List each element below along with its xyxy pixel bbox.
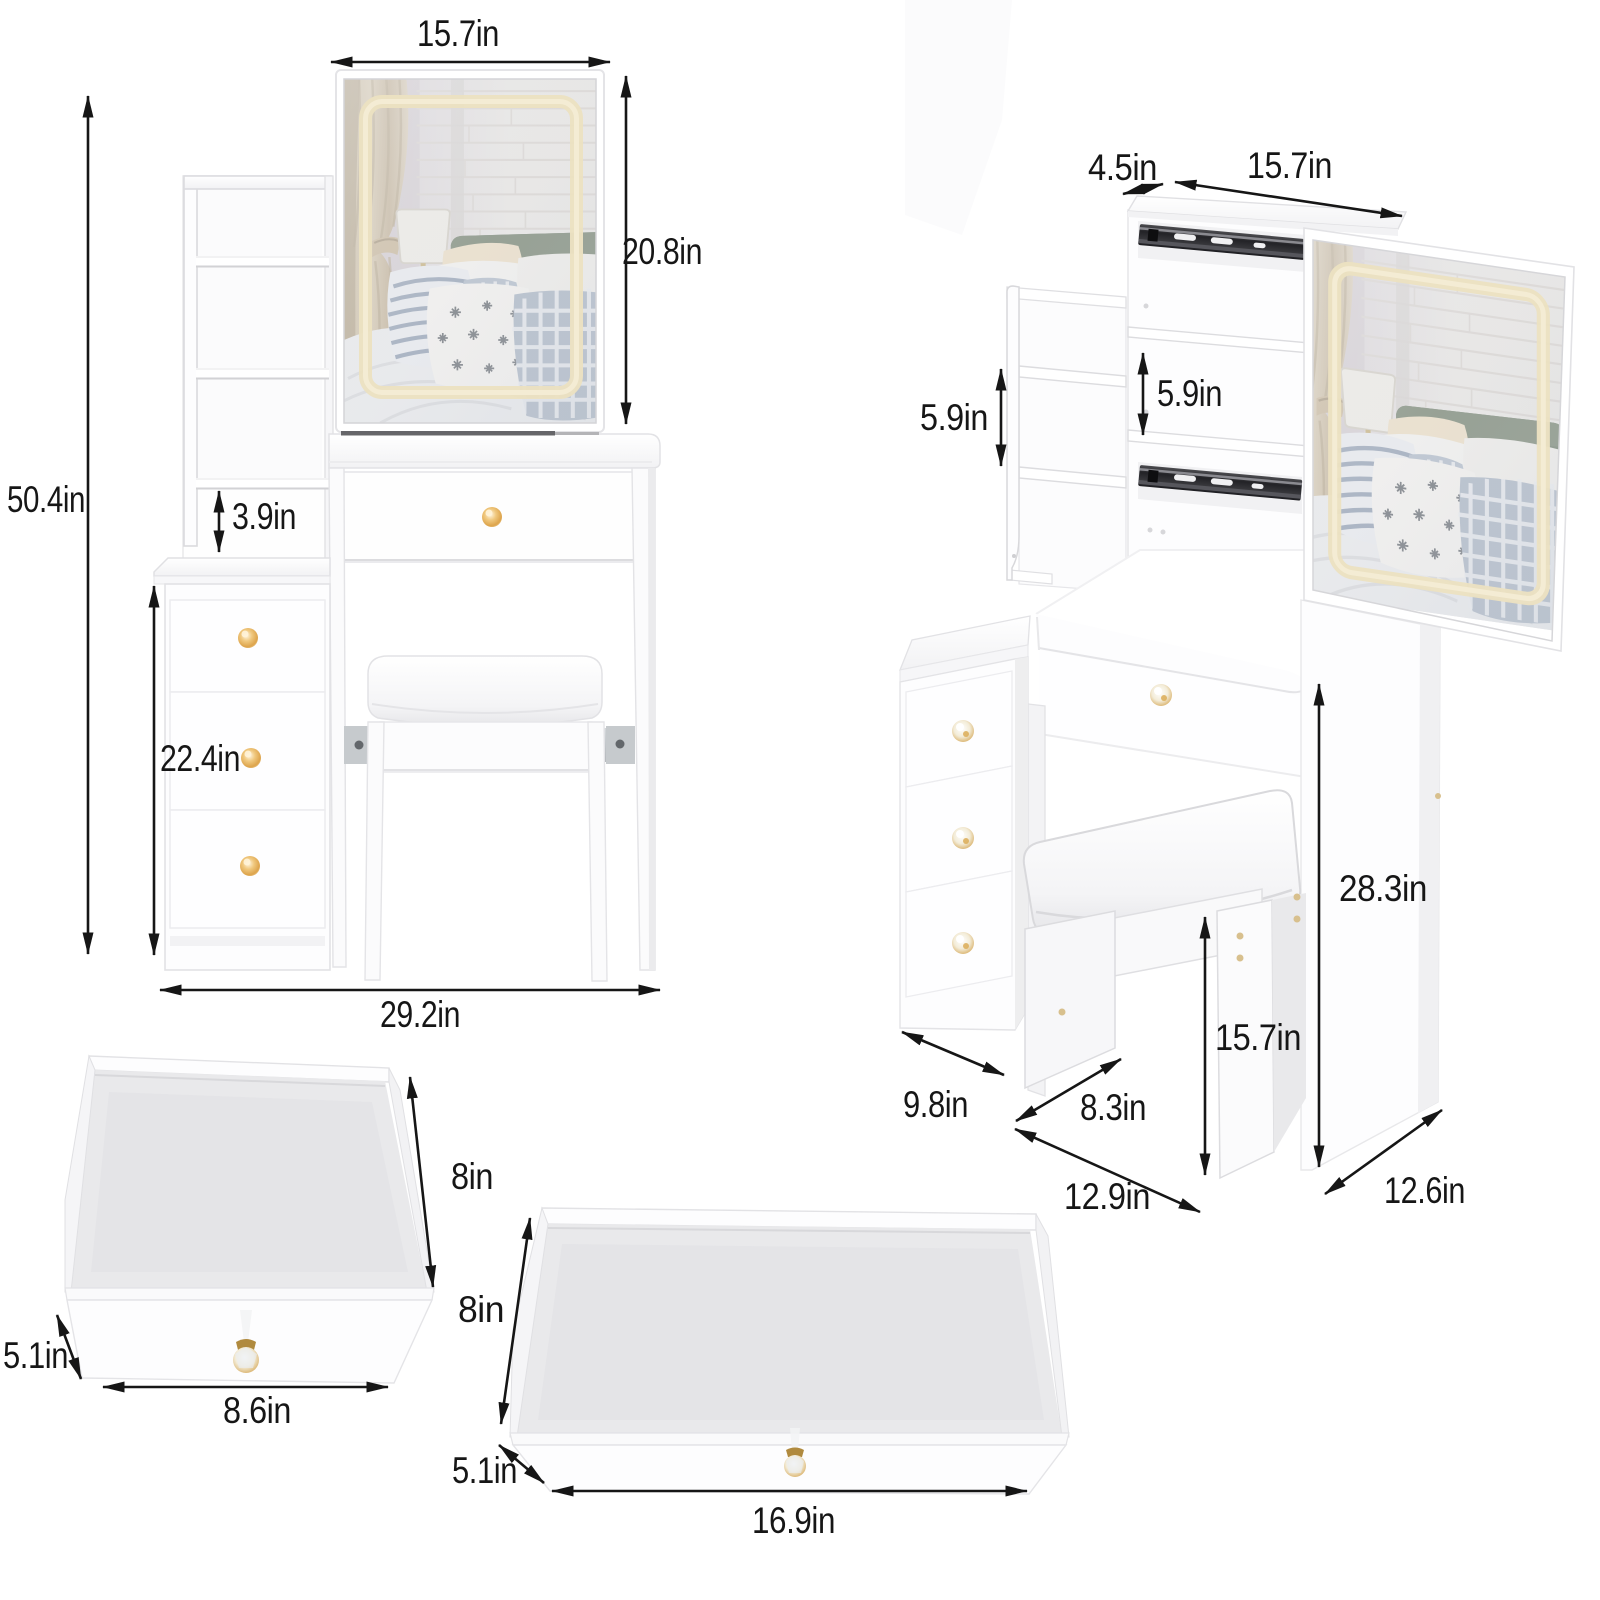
svg-text:29.2in: 29.2in bbox=[380, 994, 460, 1035]
svg-text:12.6in: 12.6in bbox=[1384, 1170, 1465, 1211]
svg-text:50.4in: 50.4in bbox=[7, 479, 85, 520]
svg-text:8in: 8in bbox=[458, 1289, 504, 1330]
svg-text:8in: 8in bbox=[451, 1156, 493, 1197]
svg-text:3.9in: 3.9in bbox=[232, 496, 296, 537]
svg-text:28.3in: 28.3in bbox=[1339, 868, 1427, 909]
svg-text:8.6in: 8.6in bbox=[223, 1390, 291, 1431]
svg-text:5.1in: 5.1in bbox=[3, 1335, 68, 1376]
svg-text:20.8in: 20.8in bbox=[622, 231, 702, 272]
svg-text:9.8in: 9.8in bbox=[903, 1084, 968, 1125]
svg-text:15.7in: 15.7in bbox=[1215, 1017, 1301, 1058]
svg-text:5.9in: 5.9in bbox=[1157, 373, 1222, 414]
svg-text:22.4in: 22.4in bbox=[160, 738, 240, 779]
svg-text:4.5in: 4.5in bbox=[1088, 147, 1157, 188]
svg-text:12.9in: 12.9in bbox=[1064, 1176, 1150, 1217]
svg-text:5.1in: 5.1in bbox=[452, 1450, 517, 1491]
svg-text:5.9in: 5.9in bbox=[920, 397, 988, 438]
svg-text:15.7in: 15.7in bbox=[417, 13, 499, 54]
svg-text:16.9in: 16.9in bbox=[752, 1500, 835, 1541]
svg-text:8.3in: 8.3in bbox=[1080, 1087, 1146, 1128]
svg-text:15.7in: 15.7in bbox=[1247, 145, 1332, 186]
